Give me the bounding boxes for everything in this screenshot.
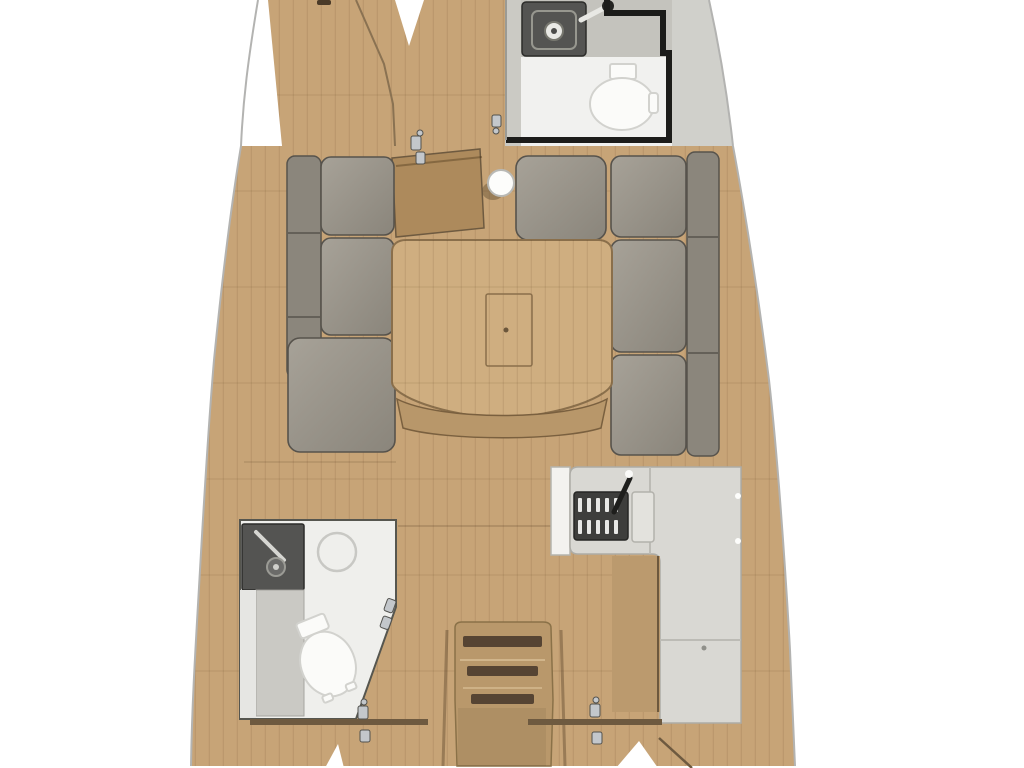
salon-table-icon: [392, 240, 612, 418]
forward-head: [492, 0, 672, 146]
seat-cushion: [611, 355, 686, 455]
sink-icon: [522, 2, 586, 56]
vanity-counter: [256, 590, 304, 716]
seat-cushion: [611, 156, 686, 237]
galley-sink: [632, 492, 654, 542]
companionway-stairs: [443, 622, 565, 766]
forward-seat-cushion: [516, 156, 606, 240]
aft-bulkhead-port: [250, 719, 428, 725]
floorplan-stage: [0, 0, 1024, 768]
port-settee: [287, 156, 395, 452]
galley-cabinet-front: [612, 556, 660, 712]
forward-cabin: [267, 0, 505, 146]
seat-cushion: [321, 157, 394, 235]
starboard-settee: [611, 152, 719, 456]
galley-end-panel: [551, 467, 570, 555]
yacht-floorplan: [0, 0, 1024, 768]
aft-bulkhead-starboard: [528, 719, 662, 725]
seat-cushion: [288, 338, 395, 452]
hatch-handle: [317, 0, 331, 5]
sink-icon: [242, 524, 304, 590]
seat-cushion: [321, 238, 394, 335]
seat-cushion: [611, 240, 686, 352]
